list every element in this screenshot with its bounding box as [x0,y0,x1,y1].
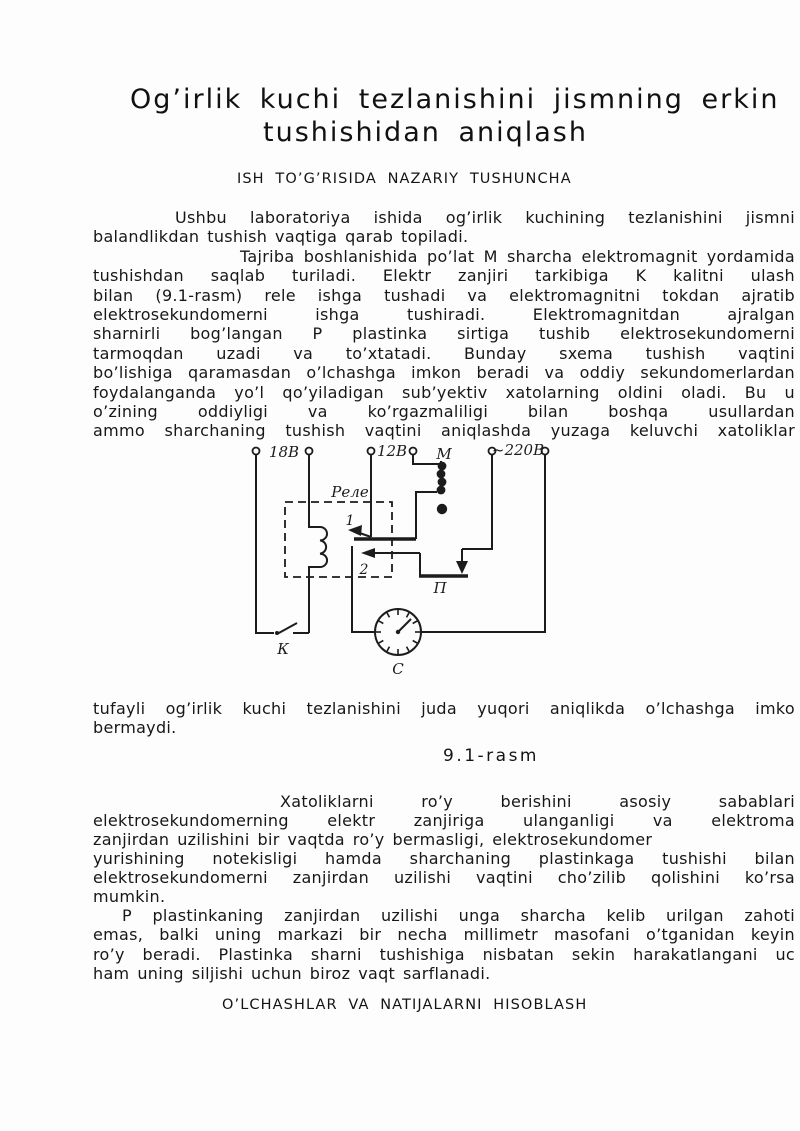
label-magnet-m: М [435,445,452,463]
magnet-winding [437,486,446,495]
label-clock-c: С [392,660,404,678]
plate-arrow [456,561,468,574]
label-relay: Реле [330,483,369,501]
section-heading-results: O’LCHASHLAR VA NATIJALARNI HISOBLASH [222,997,587,1013]
magnet-winding [438,478,447,487]
clock-hub [396,630,400,634]
label-plate-p: П [432,579,447,597]
label-220v: ~220В [492,441,544,459]
paragraph-line: elektrosekundomerni zanjirdan uzilishi v… [93,868,795,887]
label-contact1: 1 [346,513,355,529]
magnet-winding [437,470,446,479]
wire-magnet-return [416,492,437,539]
label-contact2: 2 [359,562,369,578]
paragraph-line: Xatoliklarni ro’y berishini asosiy sabab… [93,792,795,811]
wire-18v-left [256,454,274,633]
paragraph-line: tufayli og’irlik kuchi tezlanishini juda… [93,699,795,718]
label-switch-k: К [276,640,289,658]
paragraph-line: bermaydi. [93,718,795,737]
terminal [253,448,260,455]
steel-ball [437,504,447,514]
paragraph-line: mumkin. [93,887,795,906]
paragraph-line: emas, balki uning markazi bir necha mill… [93,925,795,944]
paragraph-3: P plastinkaning zanjirdan uzilishi unga … [93,906,795,984]
paragraph-line: ro’y beradi. Plastinka sharni tushishiga… [93,945,795,964]
terminal [368,448,375,455]
label-18v: 18В [269,443,299,461]
relay-coil [320,527,327,567]
terminal [306,448,313,455]
paragraph-1-continued: tufayli og’irlik kuchi tezlanishini juda… [93,699,795,738]
paragraph-line: P plastinkaning zanjirdan uzilishi unga … [93,906,795,925]
paragraph-line: elektrosekundomerning elektr zanjiriga u… [93,811,795,830]
wire-220v-left [462,454,492,549]
document-page: Og’irlik kuchi tezlanishini jismning erk… [0,0,800,1131]
clock-hand [398,619,411,632]
paragraph-line: yurishining notekisligi hamda sharchanin… [93,849,795,868]
wire-relay-top [309,454,320,527]
figure-caption: 9.1-rasm [443,746,539,766]
terminal [410,448,417,455]
paragraph-line: ham uning siljishi uchun biroz vaqt sarf… [93,964,795,983]
paragraph-line: zanjirdan uzilishini bir vaqtda ro’y ber… [93,830,795,849]
contact2-arrow [361,548,375,558]
paragraph-2: Xatoliklarni ro’y berishini asosiy sabab… [93,792,795,906]
label-12v: 12В [377,442,407,460]
